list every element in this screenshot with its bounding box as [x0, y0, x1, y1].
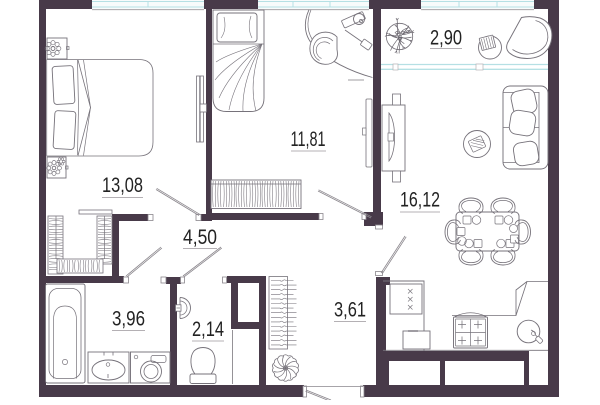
svg-text:4,50: 4,50 [183, 226, 217, 249]
svg-text:11,81: 11,81 [291, 128, 326, 151]
svg-text:2,14: 2,14 [192, 318, 224, 341]
svg-text:3,61: 3,61 [334, 299, 366, 322]
svg-text:3,96: 3,96 [112, 308, 145, 331]
svg-text:2,90: 2,90 [430, 27, 462, 50]
svg-text:13,08: 13,08 [102, 174, 143, 197]
svg-text:16,12: 16,12 [400, 189, 440, 212]
